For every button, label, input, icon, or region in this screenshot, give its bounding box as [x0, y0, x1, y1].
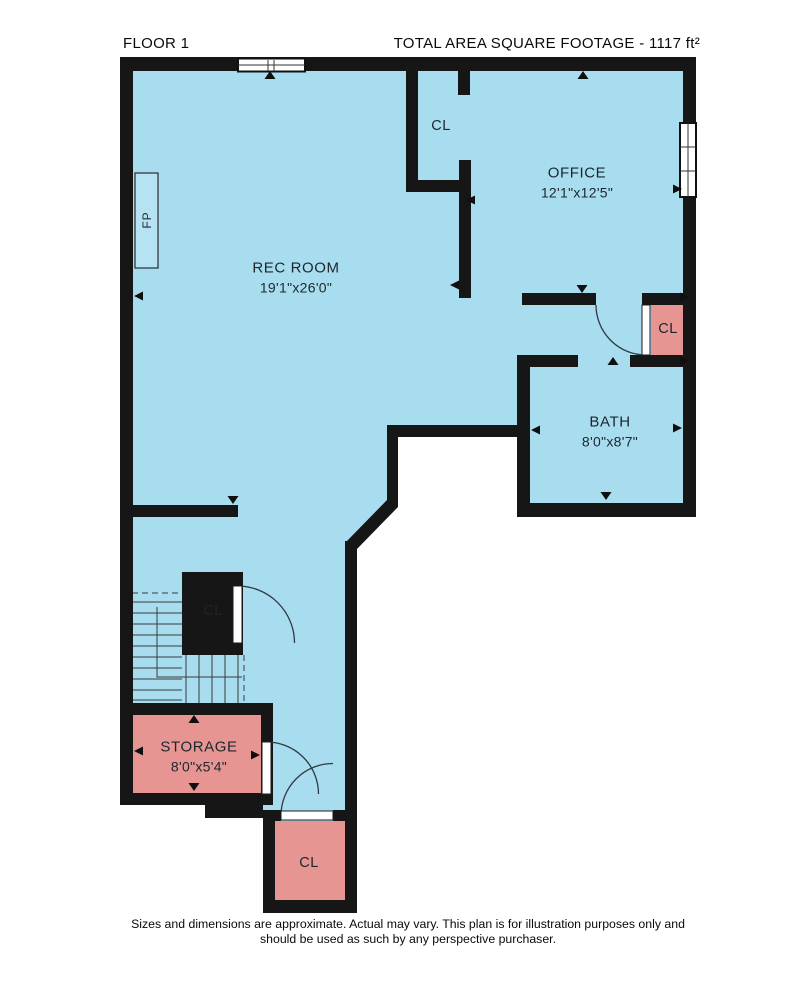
room-dims: 8'0"x5'4" — [160, 758, 237, 777]
closet-label-top: CL — [431, 117, 451, 137]
wall-office-bottom-b — [642, 293, 696, 305]
room-name: REC ROOM — [252, 258, 339, 278]
wall-rec-office-divider — [459, 160, 471, 298]
wall-rec-right — [387, 425, 398, 507]
wall-hall-right — [345, 541, 357, 913]
closet-label-bottom: CL — [299, 854, 319, 874]
wall-left — [120, 57, 133, 805]
wall-cl-top-left — [406, 57, 418, 192]
wall-bottom-closet-bottom — [263, 900, 357, 913]
room-label-bath: BATH 8'0"x8'7" — [582, 412, 638, 451]
room-name: OFFICE — [541, 163, 613, 183]
closet-label-bath: CL — [658, 320, 678, 340]
room-dims: 12'1"x12'5" — [541, 184, 613, 203]
floorplan-canvas: FLOOR 1 TOTAL AREA SQUARE FOOTAGE - 1117… — [0, 0, 796, 1000]
disclaimer-line-1: Sizes and dimensions are approximate. Ac… — [88, 917, 728, 932]
wall-bath-bottom — [517, 503, 696, 517]
closet-label-stairs: CL — [203, 602, 223, 622]
door-leaf-stairs-closet — [233, 586, 242, 643]
wall-bottom-closet-stub-a — [263, 810, 281, 821]
wall-office-bottom-a — [522, 293, 596, 305]
floorplan-drawing — [0, 0, 796, 1000]
room-label-storage: STORAGE 8'0"x5'4" — [160, 737, 237, 776]
room-name: BATH — [582, 412, 638, 432]
room-label-rec-room: REC ROOM 19'1"x26'0" — [252, 258, 339, 297]
room-dims: 19'1"x26'0" — [252, 279, 339, 298]
door-leaf-hall — [642, 305, 650, 355]
room-name: STORAGE — [160, 737, 237, 757]
wall-rec-bottom — [387, 425, 530, 437]
wall-bottom-closet-left — [263, 815, 275, 913]
wall-storage-step — [205, 805, 263, 818]
door-leaf-storage — [262, 742, 271, 794]
disclaimer: Sizes and dimensions are approximate. Ac… — [88, 917, 728, 947]
door-leaf-bottom-closet — [281, 811, 333, 820]
window-top-icon — [238, 59, 305, 72]
window-right-icon — [680, 123, 696, 197]
wall-storage-bottom — [120, 793, 263, 805]
fireplace-label: FP — [139, 211, 155, 228]
wall-stair-stub — [120, 505, 238, 517]
wall-cl-top-stub — [458, 57, 470, 95]
disclaimer-line-2: should be used as such by any perspectiv… — [88, 932, 728, 947]
room-dims: 8'0"x8'7" — [582, 433, 638, 452]
room-label-office: OFFICE 12'1"x12'5" — [541, 163, 613, 202]
wall-bottom-closet-stub-b — [333, 810, 345, 821]
wall-storage-top — [120, 703, 273, 715]
